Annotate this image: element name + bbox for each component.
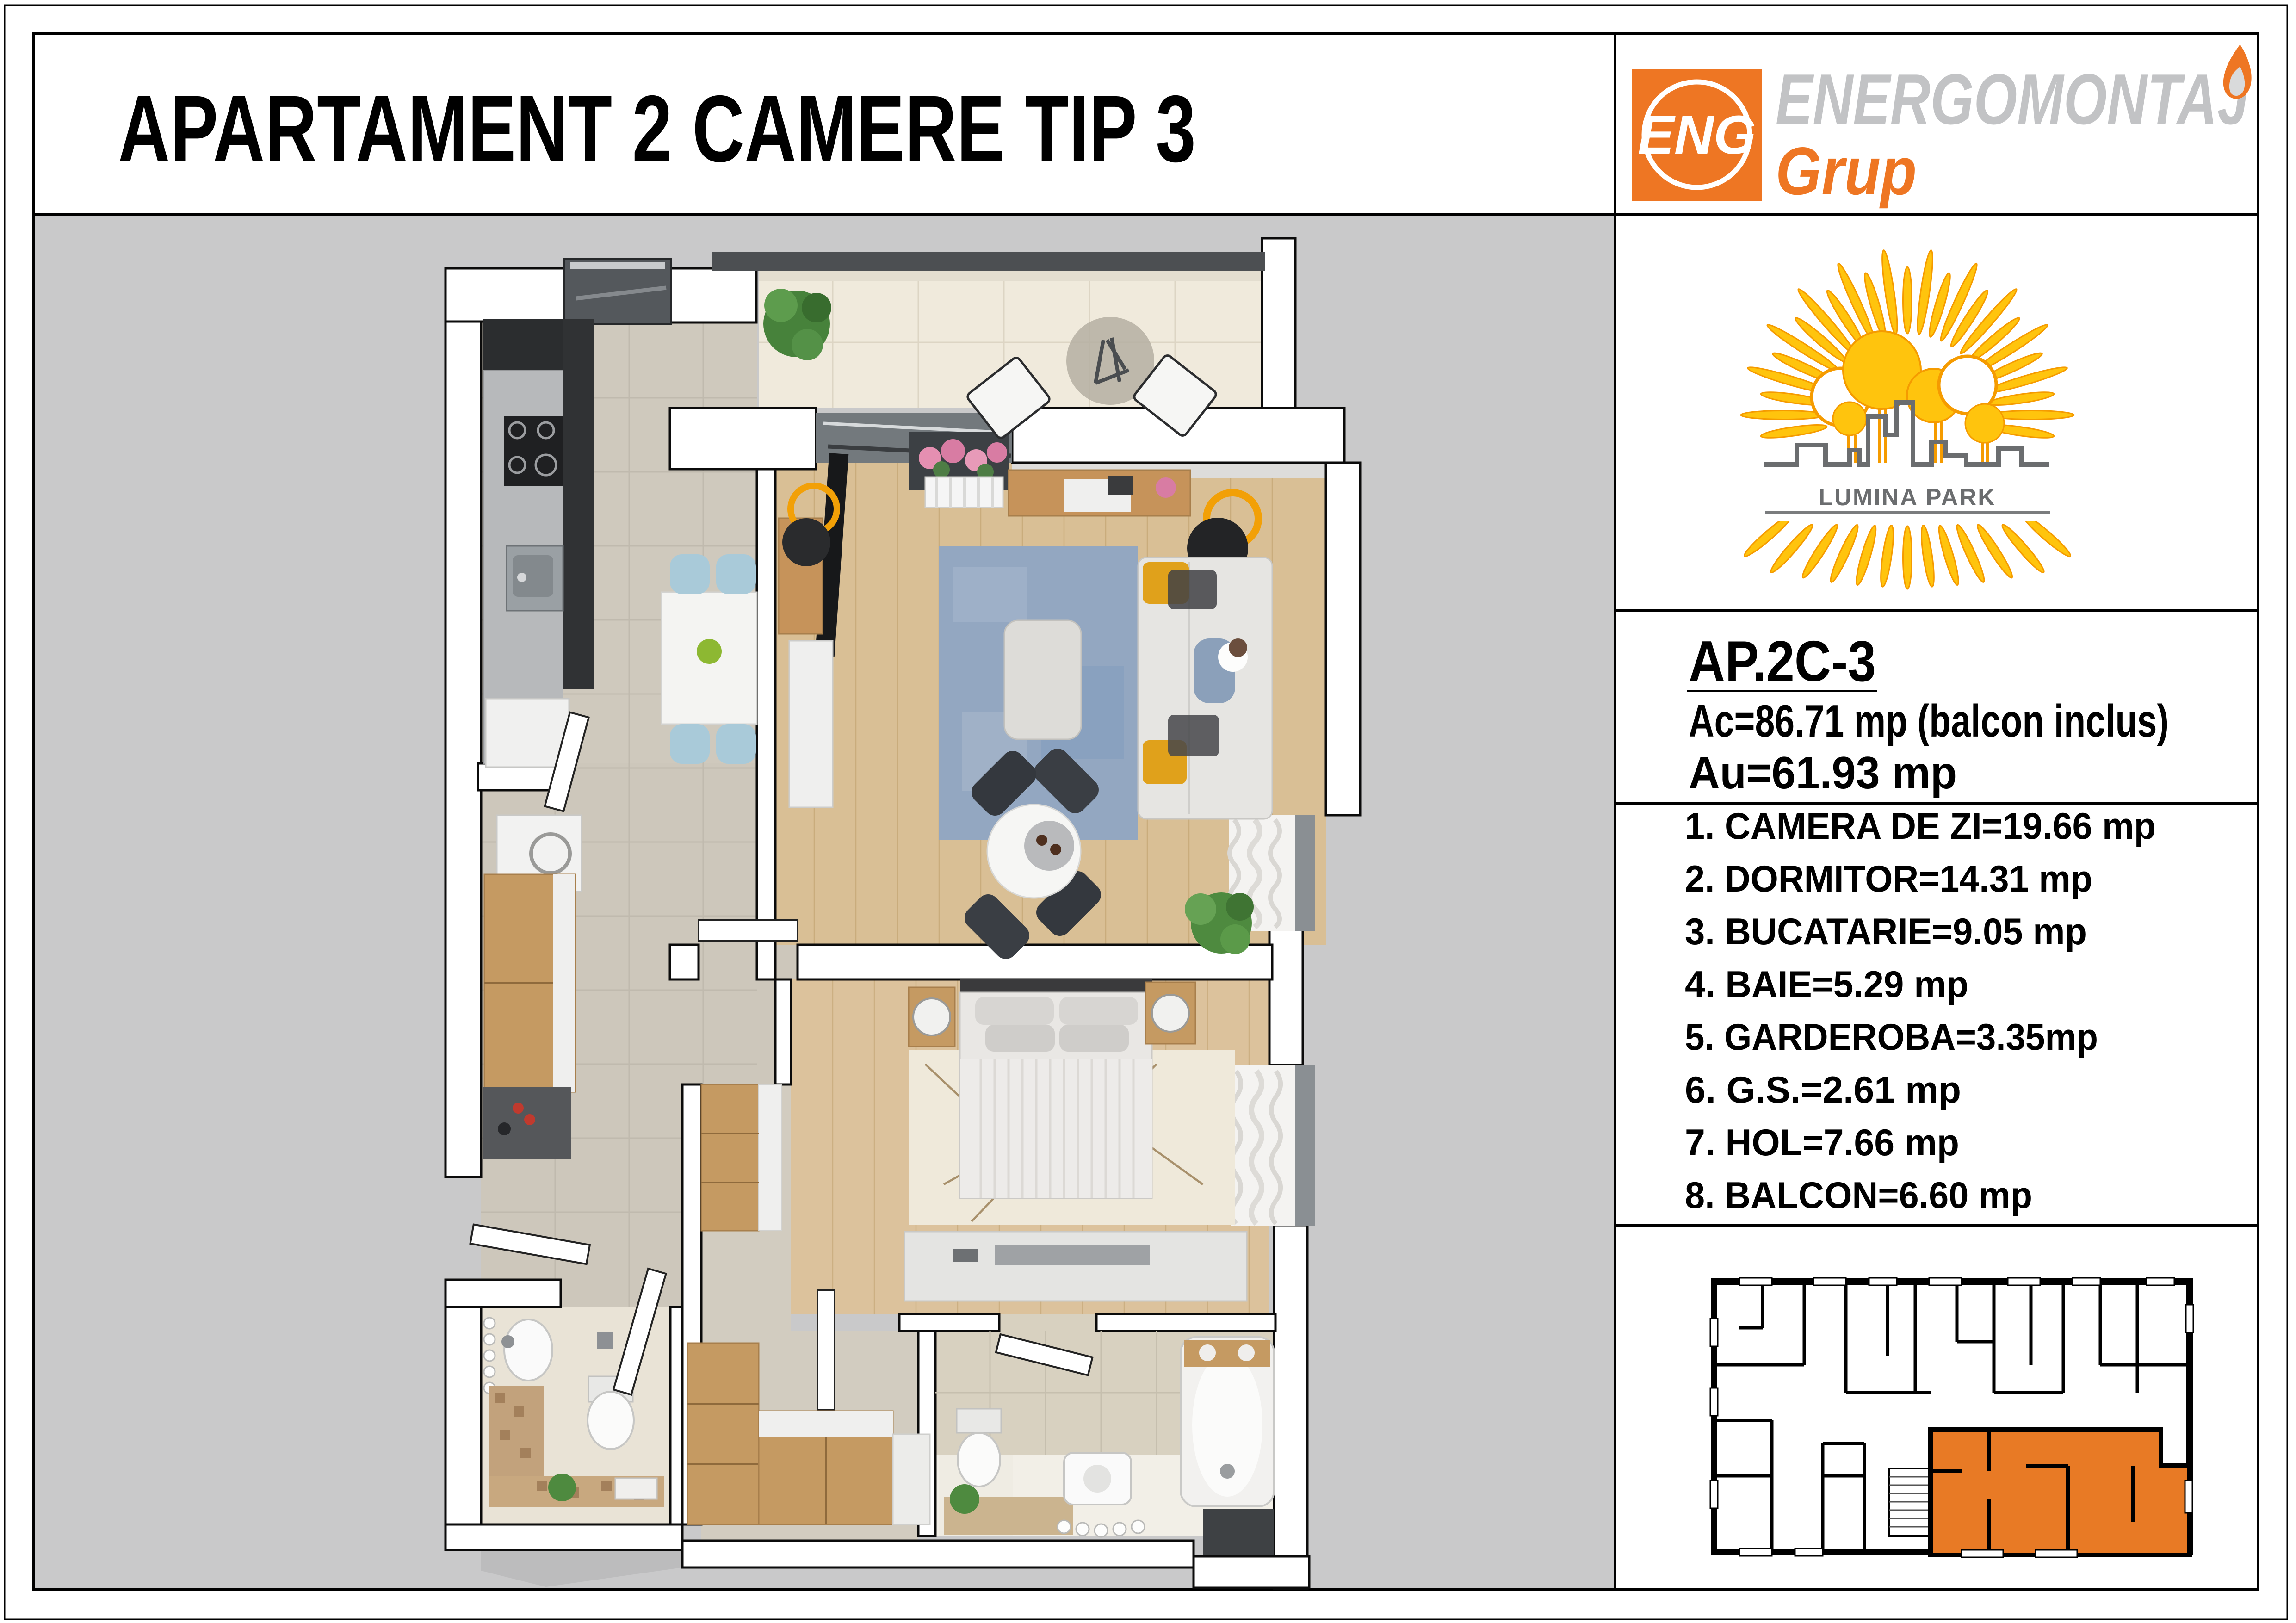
svg-text:8. BALCON=6.60 mp: 8. BALCON=6.60 mp xyxy=(1685,1175,2032,1216)
svg-text:3. BUCATARIE=9.05 mp: 3. BUCATARIE=9.05 mp xyxy=(1685,911,2087,953)
svg-text:ENG: ENG xyxy=(1638,105,1756,166)
svg-text:4. BAIE=5.29 mp: 4. BAIE=5.29 mp xyxy=(1685,964,1968,1005)
svg-text:6. G.S.=2.61 mp: 6. G.S.=2.61 mp xyxy=(1685,1069,1961,1111)
svg-text:7. HOL=7.66 mp: 7. HOL=7.66 mp xyxy=(1685,1122,1959,1164)
svg-text:2. DORMITOR=14.31 mp: 2. DORMITOR=14.31 mp xyxy=(1685,858,2092,900)
svg-text:Ac=86.71 mp (balcon inclus): Ac=86.71 mp (balcon inclus) xyxy=(1689,695,2169,746)
svg-text:APARTAMENT 2 CAMERE TIP 3: APARTAMENT 2 CAMERE TIP 3 xyxy=(118,76,1196,182)
svg-text:1. CAMERA DE ZI=19.66 mp: 1. CAMERA DE ZI=19.66 mp xyxy=(1685,805,2156,847)
svg-text:Grup: Grup xyxy=(1776,133,1917,209)
svg-text:5. GARDEROBA=3.35mp: 5. GARDEROBA=3.35mp xyxy=(1685,1016,2098,1058)
svg-text:LUMINA PARK: LUMINA PARK xyxy=(1819,484,1996,510)
svg-text:ENERGOMONTAJ: ENERGOMONTAJ xyxy=(1776,59,2249,139)
svg-text:AP.2C-3: AP.2C-3 xyxy=(1689,630,1876,694)
svg-text:Au=61.93 mp: Au=61.93 mp xyxy=(1689,747,1957,798)
